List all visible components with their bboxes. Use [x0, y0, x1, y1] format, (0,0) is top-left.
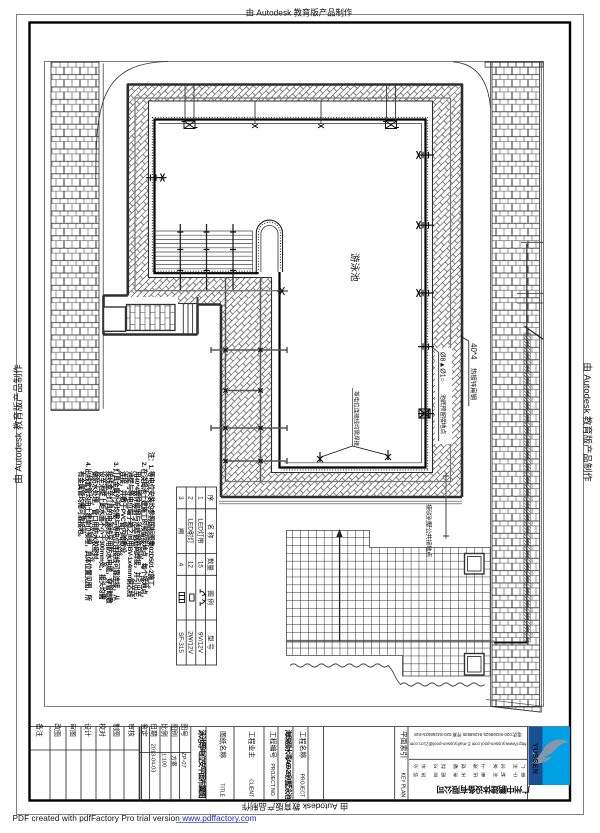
svg-text:制图: 制图: [112, 723, 121, 737]
svg-text:电话:020-84268625 84268935 传真:02: 电话:020-84268625 84268935 传真:020-84268625…: [414, 731, 522, 738]
svg-text:4. 出线套管均由土建单位预埋，具体位置见图，所: 4. 出线套管均由土建单位预埋，具体位置见图，所: [84, 462, 93, 601]
svg-text:等电位连接线均需焊接: 等电位连接线均需焊接: [353, 391, 361, 446]
svg-text:1:100: 1:100: [160, 753, 166, 767]
svg-text:连接，并敷于PVC管内暗敷设。: 连接，并敷于PVC管内暗敷设。: [119, 471, 128, 559]
svg-text:鉴定: 鉴定: [140, 723, 149, 737]
svg-text:有金属管均需可靠接地。: 有金属管均需可靠接地。: [77, 471, 86, 540]
svg-text:由 Autodesk 教育版产品制作: 由 Autodesk 教育版产品制作: [241, 802, 348, 812]
svg-text:3: 3: [177, 496, 184, 500]
svg-text:改图: 改图: [53, 723, 62, 737]
svg-text:2: 2: [187, 496, 194, 500]
svg-text:由 Autodesk 教育版产品制作: 由 Autodesk 教育版产品制作: [13, 364, 24, 483]
svg-text:方案: 方案: [170, 755, 178, 767]
svg-text:YUSSEN: YUSSEN: [531, 743, 538, 774]
svg-text:型 号: 型 号: [207, 635, 216, 650]
svg-text:日期: 日期: [150, 723, 158, 737]
svg-text:LED灯带: LED灯带: [197, 518, 206, 544]
svg-text:做防水处理，管口用防水胶密封。: 做防水处理，管口用防水胶密封。: [91, 470, 100, 565]
svg-text:SF-315: SF-315: [177, 632, 184, 653]
svg-text:2013-04-03: 2013-04-03: [150, 744, 156, 773]
svg-text:设计: 设计: [83, 723, 92, 737]
svg-text:PROJECT: PROJECT: [299, 774, 305, 797]
svg-text:2W/12V: 2W/12V: [187, 631, 194, 654]
svg-text:广州 北京 上海 成都 武汉 长沙: 广州 北京 上海 成都 武汉 长沙: [410, 763, 525, 770]
svg-text:TITLE: TITLE: [219, 783, 225, 797]
svg-text:海珠颐水湾A69-26别墅泳池: 海珠颐水湾A69-26别墅泳池: [284, 730, 293, 800]
svg-text:Ø8▲Ø1○: Ø8▲Ø1○: [439, 352, 446, 382]
svg-text:9V/12V: 9V/12V: [197, 632, 204, 654]
svg-text:平面索引: 平面索引: [399, 731, 408, 758]
svg-text:4: 4: [177, 563, 184, 567]
svg-text:工程编号: 工程编号: [269, 731, 278, 758]
svg-text:南宁 杭州 重庆 天津 南京 深圳: 南宁 杭州 重庆 天津 南京 深圳: [410, 771, 525, 778]
svg-text:比例: 比例: [160, 723, 169, 737]
svg-text:图纸名称: 图纸名称: [219, 731, 228, 758]
svg-text:游泳池: 游泳池: [349, 253, 361, 282]
svg-text:由 Autodesk 教育版产品制作: 由 Autodesk 教育版产品制作: [246, 8, 353, 18]
svg-text:PDF created with pdfFactory Pr: PDF created with pdfFactory Pro trial ve…: [13, 814, 257, 823]
svg-text:广州中鹏建体设备有限公司: 广州中鹏建体设备有限公司: [437, 784, 531, 794]
svg-text:2. 在浇捣池土建施工时预留接地点，每个接地点，: 2. 在浇捣池土建施工时预留接地点，每个接地点，: [140, 462, 149, 601]
svg-text:序: 序: [207, 495, 216, 502]
svg-text:CLIENT: CLIENT: [248, 779, 254, 797]
svg-text:15: 15: [197, 561, 204, 569]
svg-text:泳池等电位安平面布置图: 泳池等电位安平面布置图: [198, 730, 208, 799]
svg-text:设至池壁上距水面不小于300mm处，接头均需: 设至池壁上距水面不小于300mm处，接头均需: [98, 471, 107, 600]
svg-text:校对: 校对: [98, 723, 107, 737]
svg-text:由 Autodesk 教育版产品制作: 由 Autodesk 教育版产品制作: [582, 362, 593, 481]
svg-text:名 称: 名 称: [207, 524, 216, 539]
svg-text:数量: 数量: [207, 558, 216, 571]
svg-text:审图: 审图: [68, 723, 77, 737]
svg-text:备注: 备注: [35, 723, 44, 737]
svg-text:KEY PLAN: KEY PLAN: [399, 773, 405, 798]
svg-text:审核: 审核: [127, 723, 136, 737]
svg-text:图别: 图别: [170, 723, 179, 737]
svg-text:PROJECT NO.: PROJECT NO.: [269, 763, 275, 797]
svg-text:池底预留接地点: 池底预留接地点: [439, 394, 447, 434]
svg-text:图号: 图号: [180, 723, 188, 737]
svg-text:http://www.yussen-pool.com E-m: http://www.yussen-pool.com E-mail:yussen…: [409, 742, 526, 747]
svg-text:1: 1: [197, 496, 204, 500]
svg-text:接线盒至灯具的电源线采用防水电缆，穿管暗敷: 接线盒至灯具的电源线采用防水电缆，穿管暗敷: [105, 471, 114, 604]
svg-text:ZP-07: ZP-07: [180, 752, 186, 767]
svg-text:用40*4镀锌扁钢与池底钢筋网焊接，并引出至，: 用40*4镀锌扁钢与池底钢筋网焊接，并引出至，: [133, 470, 142, 603]
svg-text:热镀锌扁钢: 热镀锌扁钢: [470, 368, 479, 400]
svg-text:注：1. 等电位安装均参照国标图集02D501-2施工。: 注：1. 等电位安装均参照国标图集02D501-2施工。: [147, 452, 156, 592]
svg-text:12: 12: [187, 561, 194, 569]
svg-text:LED射灯: LED射灯: [187, 518, 196, 544]
svg-text:工程名称: 工程名称: [299, 731, 308, 758]
svg-text:图 例: 图 例: [207, 590, 216, 605]
svg-text:闸: 闸: [177, 528, 185, 534]
svg-text:3. 灯具金属外壳均需与等电位连接线可靠连接，从: 3. 灯具金属外壳均需与等电位连接线可靠连接，从: [112, 462, 121, 601]
svg-text:40*4: 40*4: [469, 343, 478, 360]
svg-text:工程业主: 工程业主: [248, 731, 257, 758]
svg-text:池壁与等电位端子箱之间用BV-1x4mm铜芯线: 池壁与等电位端子箱之间用BV-1x4mm铜芯线: [126, 471, 135, 598]
